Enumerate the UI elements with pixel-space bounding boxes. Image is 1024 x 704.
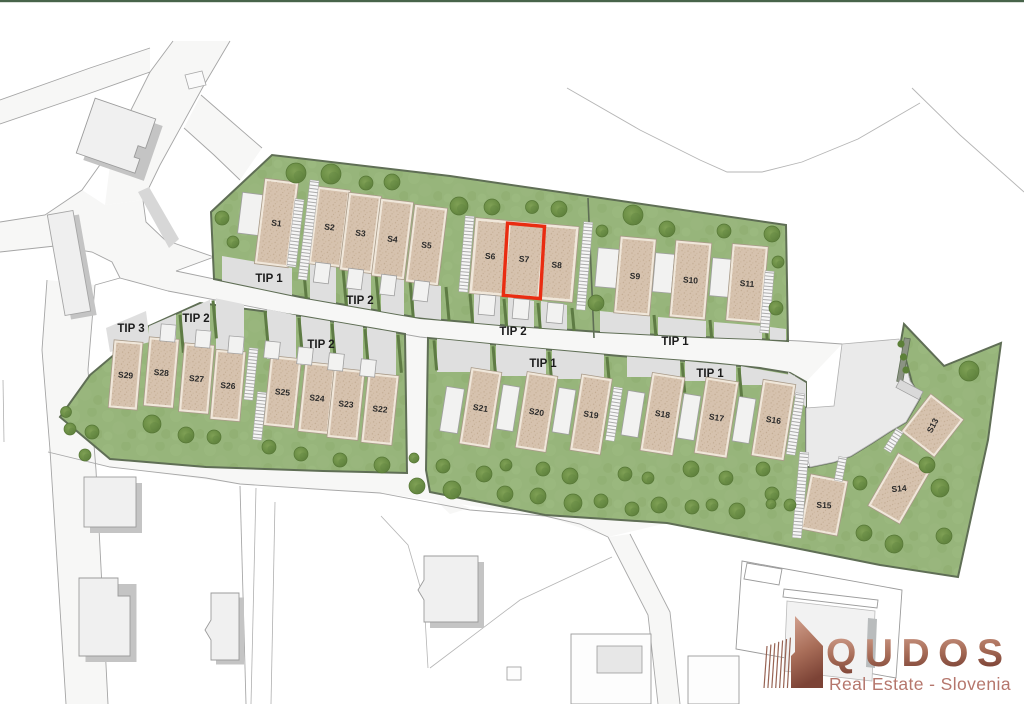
svg-text:TIP 2: TIP 2: [346, 295, 373, 307]
svg-text:S5: S5: [421, 239, 433, 250]
svg-text:S28: S28: [153, 367, 169, 378]
svg-text:S22: S22: [372, 403, 388, 415]
svg-text:S27: S27: [189, 373, 205, 384]
svg-text:TIP 1: TIP 1: [529, 358, 557, 370]
svg-text:Real Estate - Slovenia: Real Estate - Slovenia: [829, 674, 1011, 694]
svg-text:TIP 2: TIP 2: [499, 326, 526, 338]
svg-text:S10: S10: [683, 274, 699, 285]
svg-text:S2: S2: [324, 221, 336, 232]
svg-text:S26: S26: [220, 380, 236, 391]
svg-text:TIP 3: TIP 3: [117, 323, 144, 335]
svg-text:S15: S15: [816, 500, 832, 511]
svg-text:TIP 1: TIP 1: [255, 273, 283, 285]
svg-text:S4: S4: [387, 233, 399, 244]
svg-text:S11: S11: [739, 278, 755, 289]
svg-text:S29: S29: [118, 369, 134, 380]
svg-text:TIP 2: TIP 2: [182, 313, 209, 325]
svg-text:S6: S6: [485, 251, 497, 262]
svg-text:S9: S9: [629, 271, 641, 282]
svg-text:TIP 2: TIP 2: [307, 339, 334, 351]
svg-text:S25: S25: [274, 386, 290, 398]
svg-text:QUDOS: QUDOS: [826, 632, 1012, 675]
svg-text:S1: S1: [271, 217, 283, 228]
svg-text:TIP 1: TIP 1: [661, 336, 689, 348]
svg-text:S23: S23: [338, 398, 354, 410]
svg-text:S24: S24: [309, 392, 325, 404]
svg-text:S8: S8: [551, 259, 563, 270]
svg-text:S14: S14: [891, 483, 907, 494]
svg-text:TIP 1: TIP 1: [696, 368, 724, 380]
svg-text:S3: S3: [355, 227, 367, 238]
svg-text:S7: S7: [518, 254, 530, 265]
